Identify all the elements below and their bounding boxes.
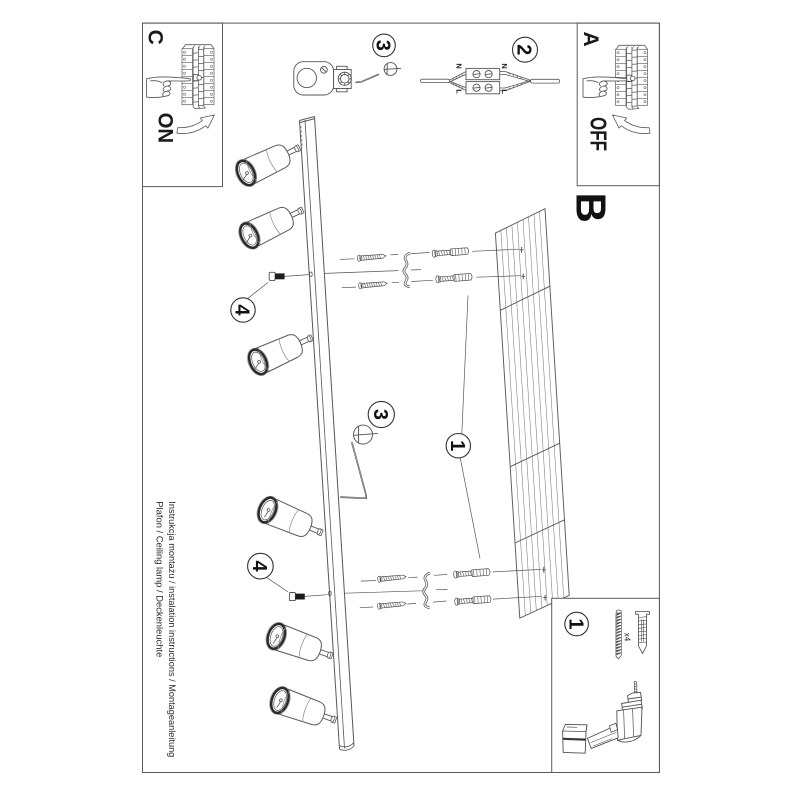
svg-text:OFF: OFF: [585, 117, 611, 151]
svg-text:N: N: [454, 63, 463, 68]
svg-text:B: B: [568, 193, 615, 223]
svg-text:N: N: [500, 63, 509, 68]
svg-text:ON: ON: [153, 113, 176, 144]
svg-text:1: 1: [446, 440, 468, 451]
svg-text:C: C: [144, 30, 167, 45]
svg-text:x4: x4: [623, 633, 632, 642]
svg-text:3: 3: [372, 40, 394, 51]
svg-text:2: 2: [513, 44, 535, 55]
svg-text:Plafon / Ceiling lamp / Decken: Plafon / Ceiling lamp / Deckenleuchte: [154, 501, 165, 657]
svg-text:L: L: [500, 89, 509, 94]
svg-text:1: 1: [564, 618, 586, 629]
svg-text:4: 4: [248, 561, 270, 573]
svg-text:3: 3: [369, 409, 391, 420]
svg-text:L: L: [454, 89, 463, 94]
svg-text:A: A: [579, 32, 602, 47]
svg-text:4: 4: [231, 304, 253, 316]
svg-text:Instrukcja montażu / instalati: Instrukcja montażu / instalation instruc…: [166, 501, 177, 757]
